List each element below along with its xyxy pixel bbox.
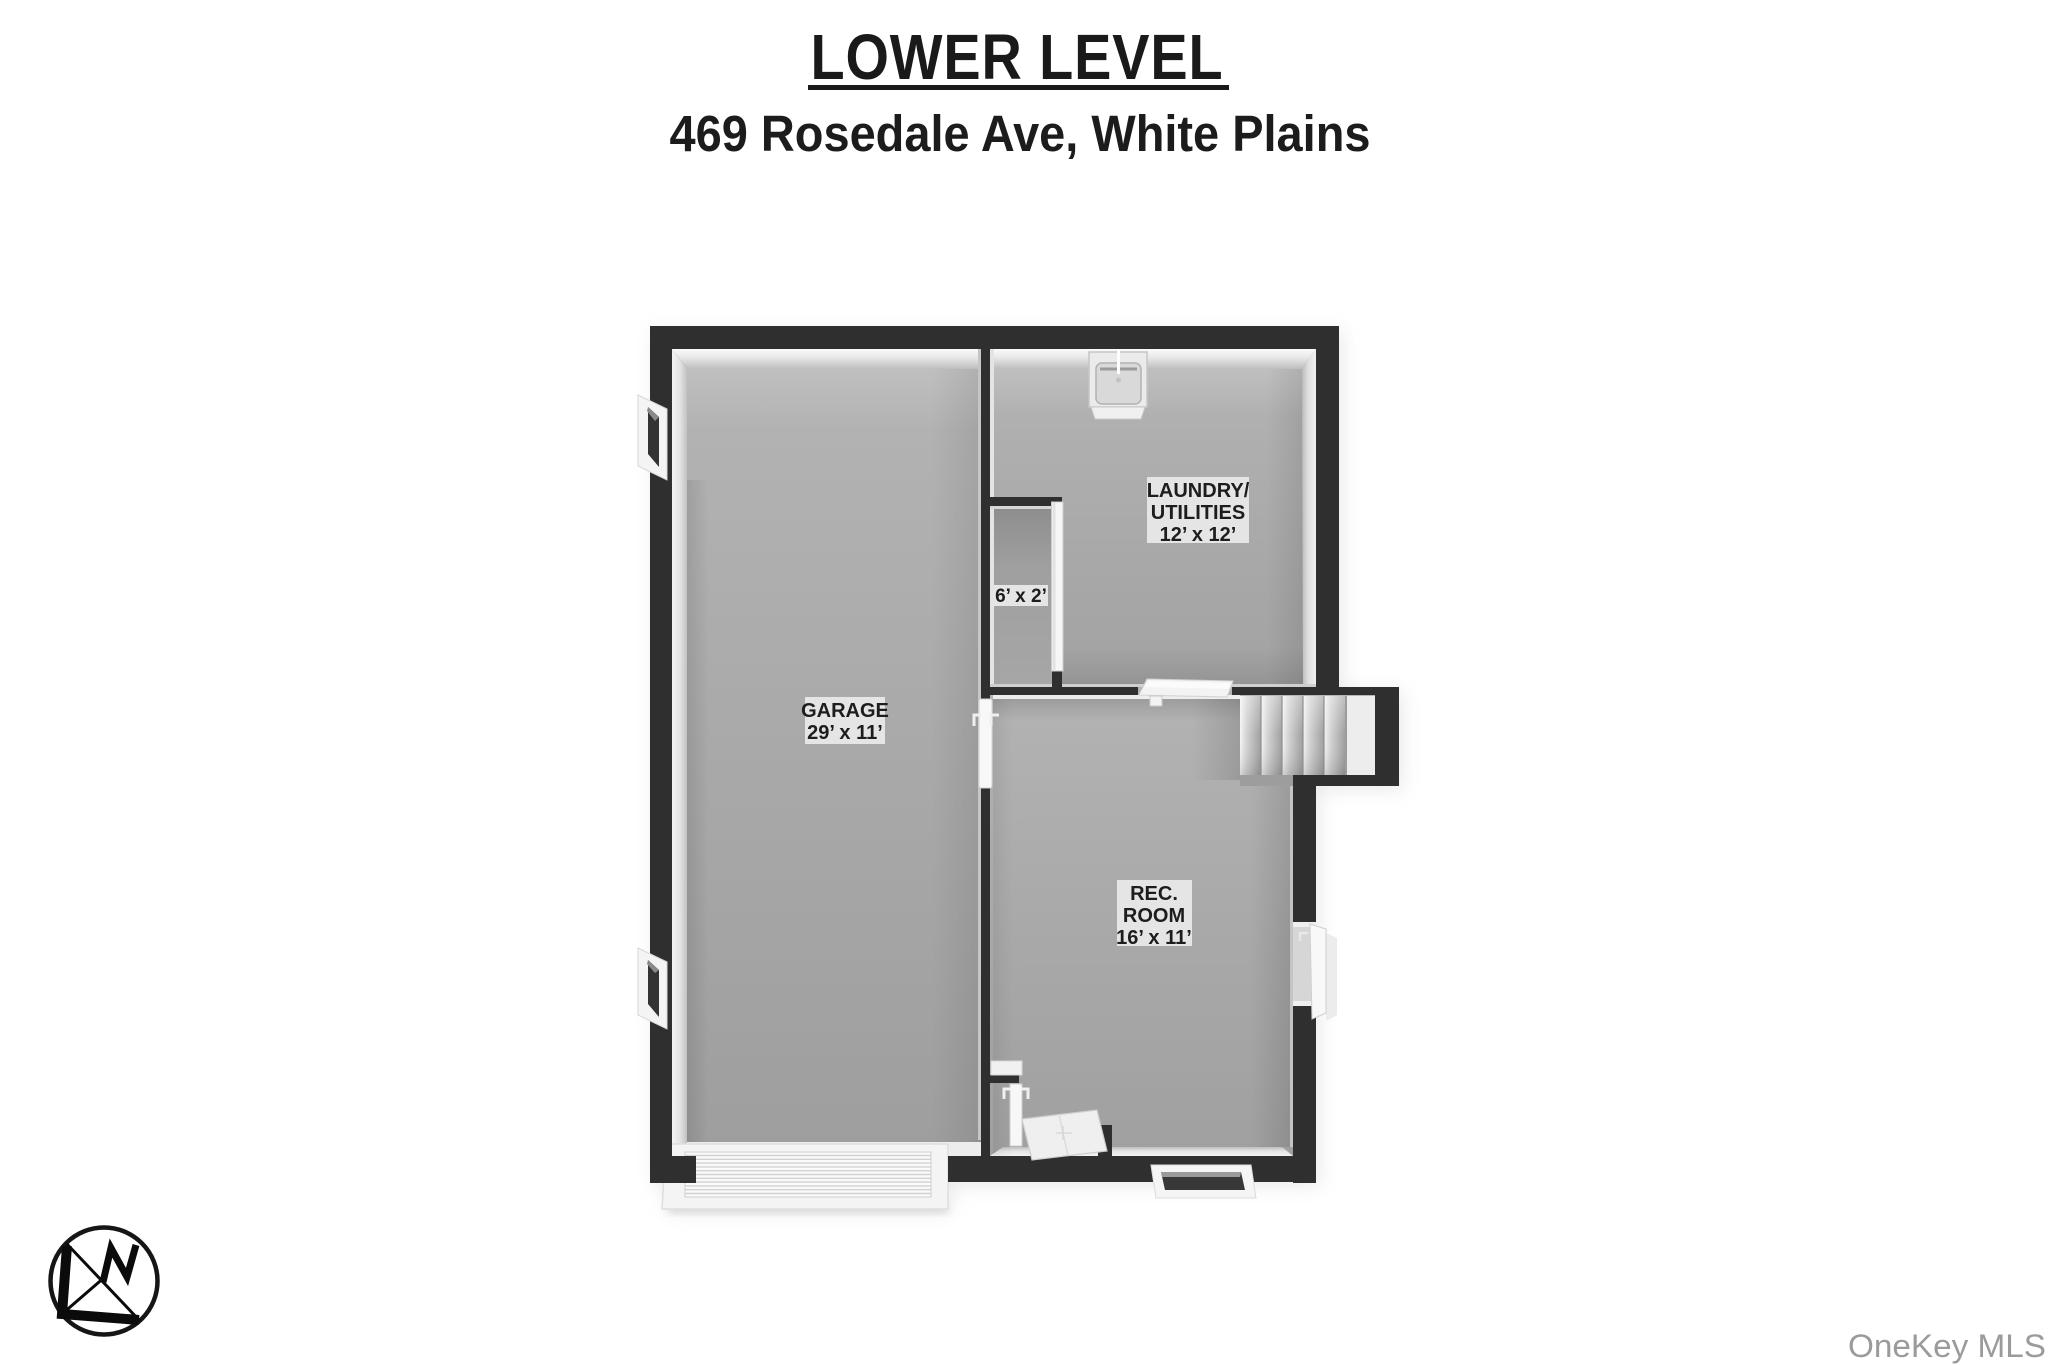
svg-text:16’ x 11’: 16’ x 11’ <box>1116 927 1192 949</box>
svg-text:GARAGE: GARAGE <box>801 700 889 722</box>
svg-text:6’ x 2’: 6’ x 2’ <box>995 586 1047 607</box>
svg-text:LOWER LEVEL: LOWER LEVEL <box>811 21 1224 93</box>
svg-text:OneKey MLS: OneKey MLS <box>1848 1328 2046 1364</box>
svg-text:REC.: REC. <box>1130 883 1178 905</box>
svg-text:UTILITIES: UTILITIES <box>1151 502 1245 524</box>
svg-text:12’ x 12’: 12’ x 12’ <box>1160 524 1237 546</box>
svg-text:469 Rosedale Ave, White Plains: 469 Rosedale Ave, White Plains <box>670 105 1371 162</box>
svg-text:29’ x 11’: 29’ x 11’ <box>807 722 883 744</box>
svg-text:ROOM: ROOM <box>1123 905 1185 927</box>
svg-text:LAUNDRY/: LAUNDRY/ <box>1147 480 1250 502</box>
